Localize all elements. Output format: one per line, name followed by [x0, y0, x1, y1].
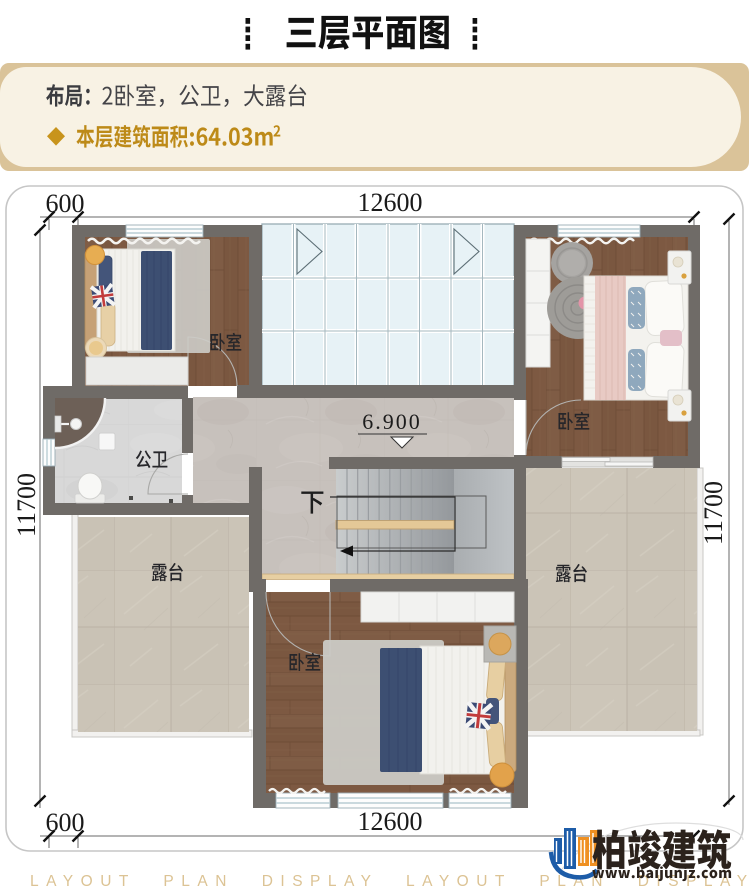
svg-text:11700: 11700	[12, 473, 41, 537]
svg-text:600: 600	[46, 189, 85, 218]
svg-text:LAYOUT PLAN DISPLAY LAYOUT PLA: LAYOUT PLAN DISPLAY LAYOUT PLAN DISPLAY	[30, 873, 749, 890]
svg-text:600: 600	[46, 808, 85, 837]
svg-text:12600: 12600	[358, 807, 423, 836]
svg-text:6.900: 6.900	[362, 409, 422, 434]
svg-text:12600: 12600	[358, 188, 423, 217]
